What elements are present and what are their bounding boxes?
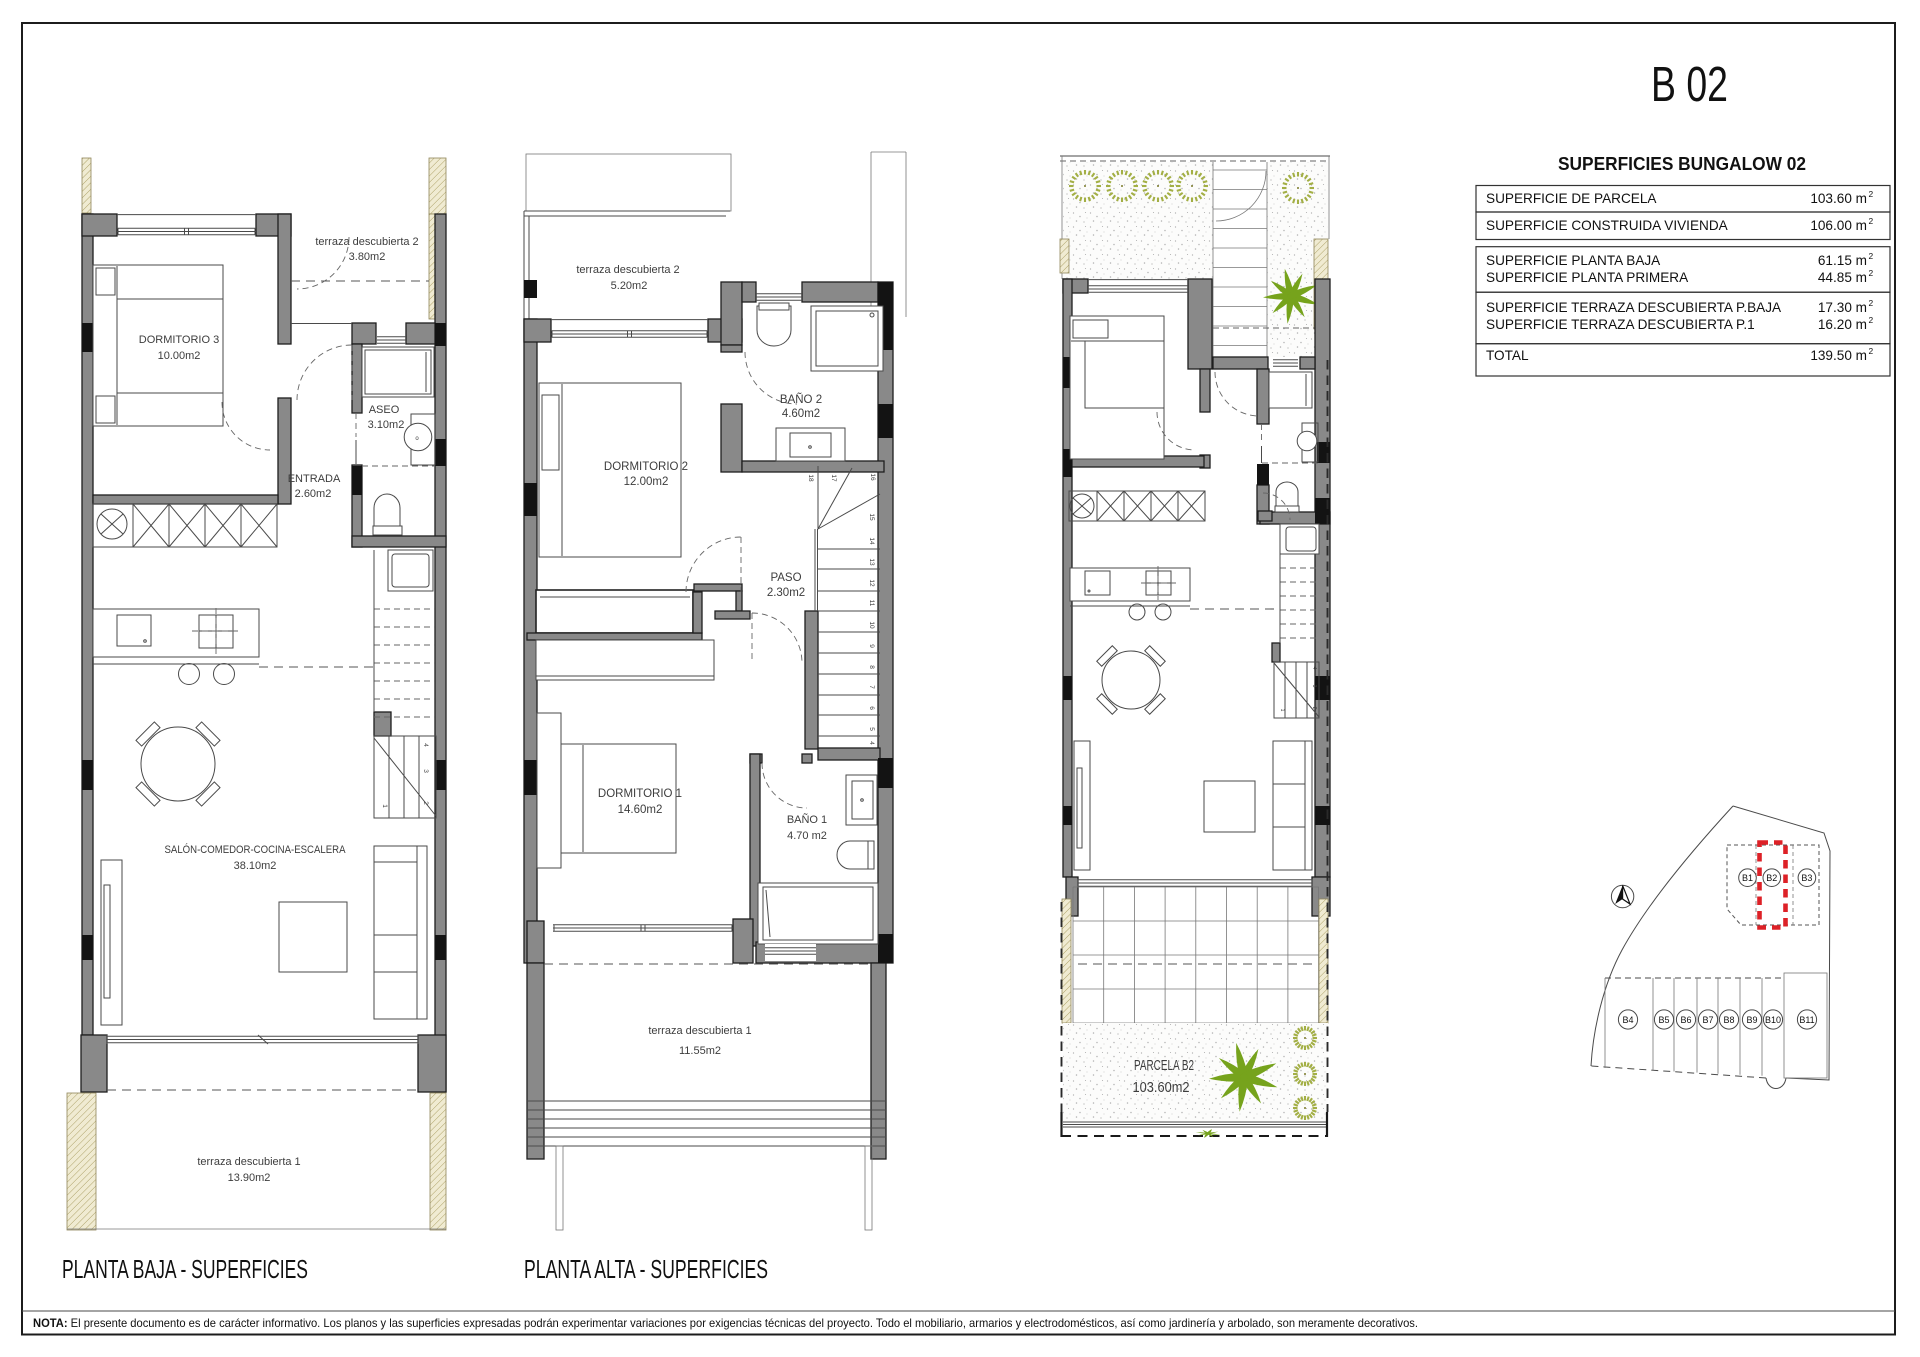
svg-text:B4: B4 bbox=[1622, 1015, 1633, 1025]
svg-text:terraza descubierta 1: terraza descubierta 1 bbox=[648, 1025, 751, 1037]
svg-text:ASEO: ASEO bbox=[369, 404, 400, 416]
svg-text:2: 2 bbox=[1869, 346, 1874, 356]
svg-text:7: 7 bbox=[868, 685, 875, 689]
svg-text:B7: B7 bbox=[1702, 1015, 1713, 1025]
svg-text:14: 14 bbox=[868, 537, 875, 545]
svg-text:B5: B5 bbox=[1658, 1015, 1669, 1025]
svg-text:14.60m2: 14.60m2 bbox=[618, 804, 663, 816]
svg-text:2: 2 bbox=[1869, 315, 1874, 325]
svg-text:B8: B8 bbox=[1723, 1015, 1734, 1025]
svg-text:2: 2 bbox=[1869, 216, 1874, 226]
svg-text:2: 2 bbox=[1869, 298, 1874, 308]
svg-text:10: 10 bbox=[868, 621, 875, 629]
svg-text:NOTA: El presente documento e: NOTA: El presente documento es de caráct… bbox=[33, 1317, 1418, 1330]
svg-text:61.15 m: 61.15 m bbox=[1818, 253, 1867, 268]
svg-text:PLANTA BAJA - SUPERFICIES: PLANTA BAJA - SUPERFICIES bbox=[62, 1256, 308, 1284]
svg-text:terraza descubierta 2: terraza descubierta 2 bbox=[576, 264, 679, 276]
svg-text:17: 17 bbox=[830, 474, 837, 482]
svg-text:terraza descubierta 1: terraza descubierta 1 bbox=[197, 1156, 300, 1168]
svg-text:ENTRADA: ENTRADA bbox=[288, 473, 341, 485]
svg-text:2.30m2: 2.30m2 bbox=[767, 587, 805, 599]
svg-text:B2: B2 bbox=[1766, 873, 1777, 883]
svg-text:8: 8 bbox=[868, 665, 875, 669]
svg-text:B 02: B 02 bbox=[1651, 58, 1728, 112]
svg-text:4.70 m2: 4.70 m2 bbox=[787, 830, 827, 842]
svg-text:B6: B6 bbox=[1680, 1015, 1691, 1025]
svg-text:4: 4 bbox=[868, 741, 875, 745]
svg-text:2: 2 bbox=[1311, 707, 1317, 710]
svg-text:13: 13 bbox=[868, 558, 875, 566]
svg-text:B1: B1 bbox=[1742, 873, 1753, 883]
svg-text:SUPERFICIE PLANTA PRIMERA: SUPERFICIE PLANTA PRIMERA bbox=[1486, 270, 1689, 285]
svg-text:13.90m2: 13.90m2 bbox=[228, 1172, 271, 1184]
svg-text:16.20 m: 16.20 m bbox=[1818, 317, 1867, 332]
svg-text:4.60m2: 4.60m2 bbox=[782, 408, 820, 420]
svg-text:5: 5 bbox=[868, 727, 875, 731]
svg-text:B9: B9 bbox=[1746, 1015, 1757, 1025]
svg-text:15: 15 bbox=[868, 513, 875, 521]
svg-text:SUPERFICIE CONSTRUIDA VIVIENDA: SUPERFICIE CONSTRUIDA VIVIENDA bbox=[1486, 218, 1729, 233]
svg-text:SUPERFICIE PLANTA BAJA: SUPERFICIE PLANTA BAJA bbox=[1486, 253, 1661, 268]
svg-text:B11: B11 bbox=[1799, 1015, 1814, 1025]
svg-text:18: 18 bbox=[807, 474, 814, 482]
svg-text:PASO: PASO bbox=[770, 572, 801, 584]
svg-text:BAÑO 2: BAÑO 2 bbox=[780, 393, 822, 406]
svg-text:DORMITORIO 3: DORMITORIO 3 bbox=[139, 334, 219, 346]
svg-text:4: 4 bbox=[1311, 667, 1317, 670]
svg-text:1: 1 bbox=[1279, 709, 1285, 712]
svg-text:2: 2 bbox=[1869, 268, 1874, 278]
svg-text:103.60m2: 103.60m2 bbox=[1133, 1080, 1190, 1096]
svg-text:1: 1 bbox=[381, 804, 388, 808]
svg-text:2: 2 bbox=[1869, 189, 1874, 199]
svg-text:2.60m2: 2.60m2 bbox=[295, 488, 332, 500]
svg-text:11: 11 bbox=[868, 600, 875, 607]
svg-text:DORMITORIO 2: DORMITORIO 2 bbox=[604, 461, 688, 473]
svg-text:2: 2 bbox=[1869, 251, 1874, 261]
svg-text:11.55m2: 11.55m2 bbox=[679, 1045, 721, 1057]
svg-text:SUPERFICIE DE PARCELA: SUPERFICIE DE PARCELA bbox=[1486, 191, 1657, 206]
svg-text:3: 3 bbox=[422, 769, 429, 773]
svg-text:5.20m2: 5.20m2 bbox=[611, 280, 648, 292]
svg-text:10.00m2: 10.00m2 bbox=[158, 350, 201, 362]
svg-text:9: 9 bbox=[868, 644, 875, 648]
svg-text:SUPERFICIES BUNGALOW 02: SUPERFICIES BUNGALOW 02 bbox=[1558, 154, 1806, 174]
svg-text:3.80m2: 3.80m2 bbox=[349, 251, 386, 263]
svg-text:B10: B10 bbox=[1765, 1015, 1781, 1025]
svg-text:17.30 m: 17.30 m bbox=[1818, 300, 1867, 315]
svg-text:3: 3 bbox=[1311, 685, 1317, 688]
svg-text:SALÓN-COMEDOR-COCINA-ESCALERA: SALÓN-COMEDOR-COCINA-ESCALERA bbox=[165, 843, 347, 856]
svg-text:6: 6 bbox=[868, 706, 875, 710]
svg-text:38.10m2: 38.10m2 bbox=[234, 860, 277, 872]
svg-text:44.85 m: 44.85 m bbox=[1818, 270, 1867, 285]
svg-text:106.00 m: 106.00 m bbox=[1810, 218, 1867, 233]
svg-text:4: 4 bbox=[422, 743, 429, 747]
svg-text:103.60 m: 103.60 m bbox=[1810, 191, 1867, 206]
svg-text:DORMITORIO 1: DORMITORIO 1 bbox=[598, 788, 682, 800]
svg-text:139.50 m: 139.50 m bbox=[1810, 348, 1867, 363]
svg-text:B3: B3 bbox=[1801, 873, 1812, 883]
svg-text:PARCELA B2: PARCELA B2 bbox=[1134, 1058, 1194, 1074]
svg-text:16: 16 bbox=[869, 473, 876, 481]
svg-text:terraza descubierta 2: terraza descubierta 2 bbox=[315, 236, 418, 248]
svg-text:12.00m2: 12.00m2 bbox=[624, 476, 669, 488]
svg-text:3.10m2: 3.10m2 bbox=[368, 419, 405, 431]
svg-text:12: 12 bbox=[868, 579, 875, 587]
svg-text:TOTAL: TOTAL bbox=[1486, 348, 1529, 363]
svg-text:PLANTA ALTA - SUPERFICIES: PLANTA ALTA - SUPERFICIES bbox=[524, 1256, 768, 1284]
svg-text:SUPERFICIE TERRAZA DESCUBIERTA: SUPERFICIE TERRAZA DESCUBIERTA P.1 bbox=[1486, 317, 1755, 332]
svg-text:SUPERFICIE TERRAZA DESCUBIERTA: SUPERFICIE TERRAZA DESCUBIERTA P.BAJA bbox=[1486, 300, 1782, 315]
svg-text:BAÑO 1: BAÑO 1 bbox=[787, 813, 827, 826]
svg-text:2: 2 bbox=[422, 801, 429, 805]
